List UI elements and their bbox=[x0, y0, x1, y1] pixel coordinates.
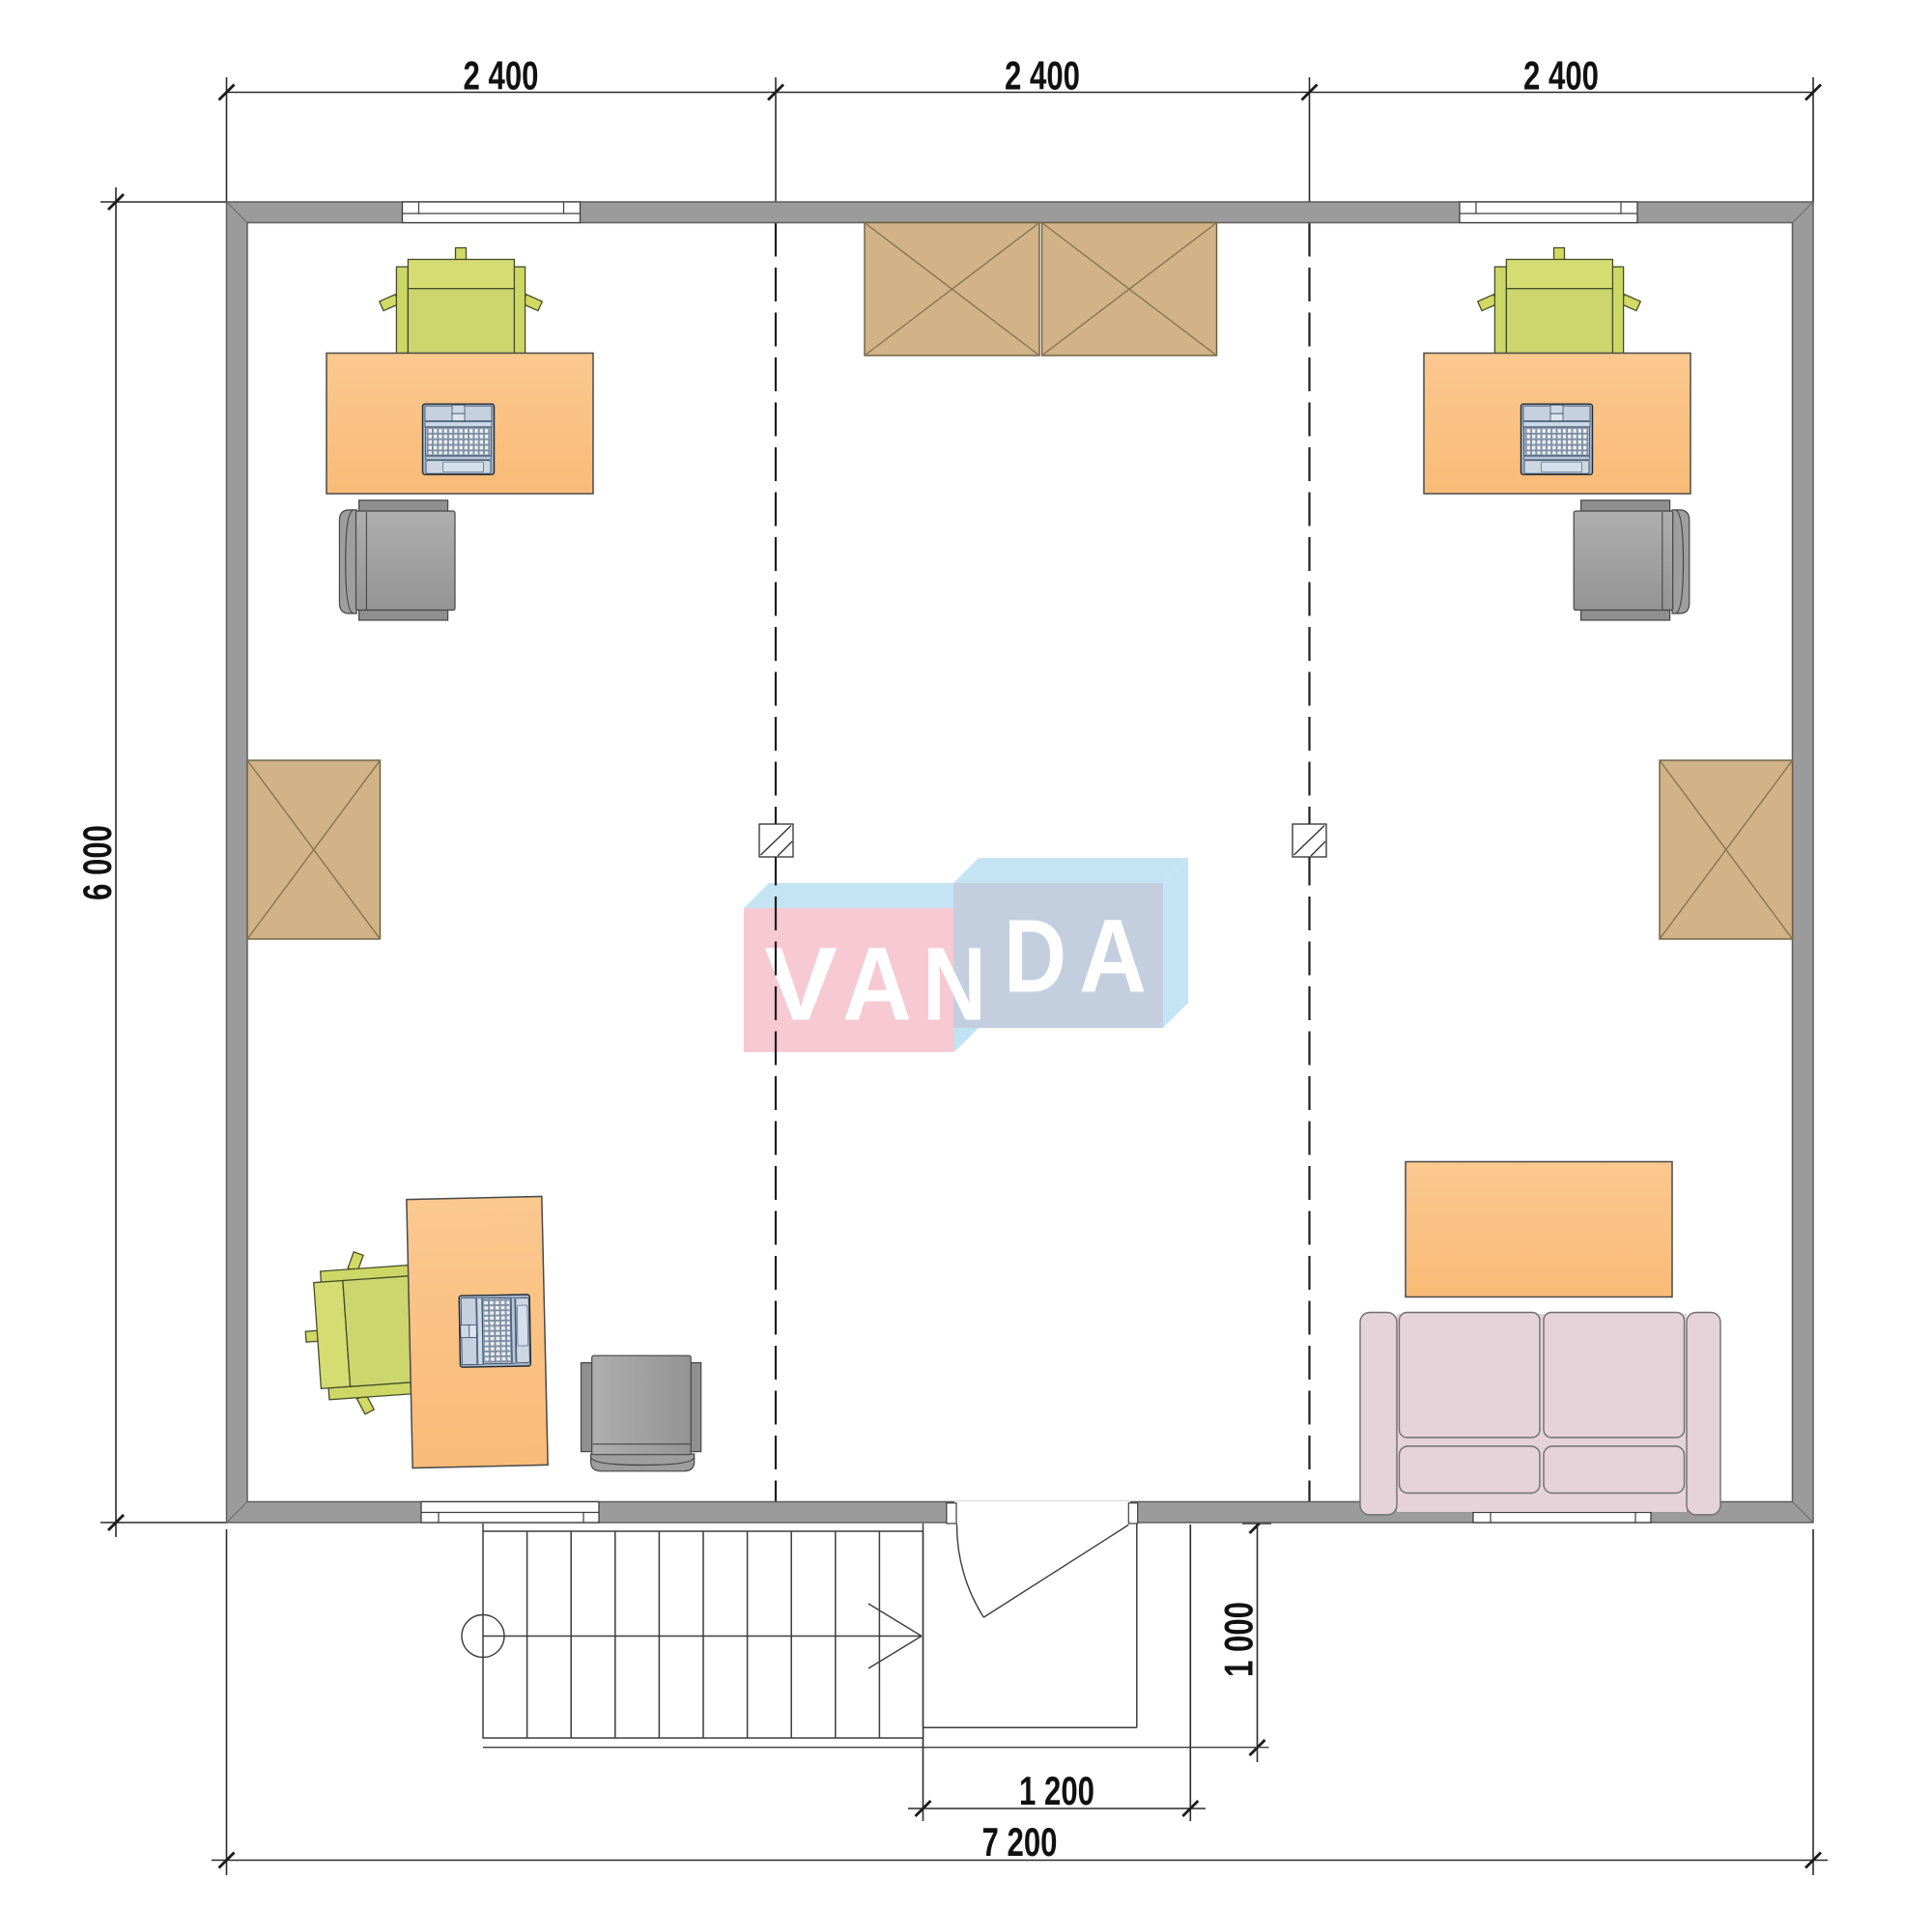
svg-text:2 400: 2 400 bbox=[464, 53, 539, 99]
svg-text:A: A bbox=[1079, 897, 1147, 1014]
svg-text:7 200: 7 200 bbox=[982, 1819, 1058, 1865]
svg-text:1 000: 1 000 bbox=[1216, 1602, 1262, 1677]
svg-text:2 400: 2 400 bbox=[1523, 53, 1599, 99]
svg-text:A: A bbox=[842, 926, 912, 1042]
svg-text:N: N bbox=[923, 926, 986, 1042]
svg-text:1 200: 1 200 bbox=[1019, 1768, 1094, 1813]
svg-text:6 000: 6 000 bbox=[74, 825, 120, 900]
svg-text:D: D bbox=[1004, 897, 1066, 1014]
svg-text:2 400: 2 400 bbox=[1005, 53, 1080, 99]
